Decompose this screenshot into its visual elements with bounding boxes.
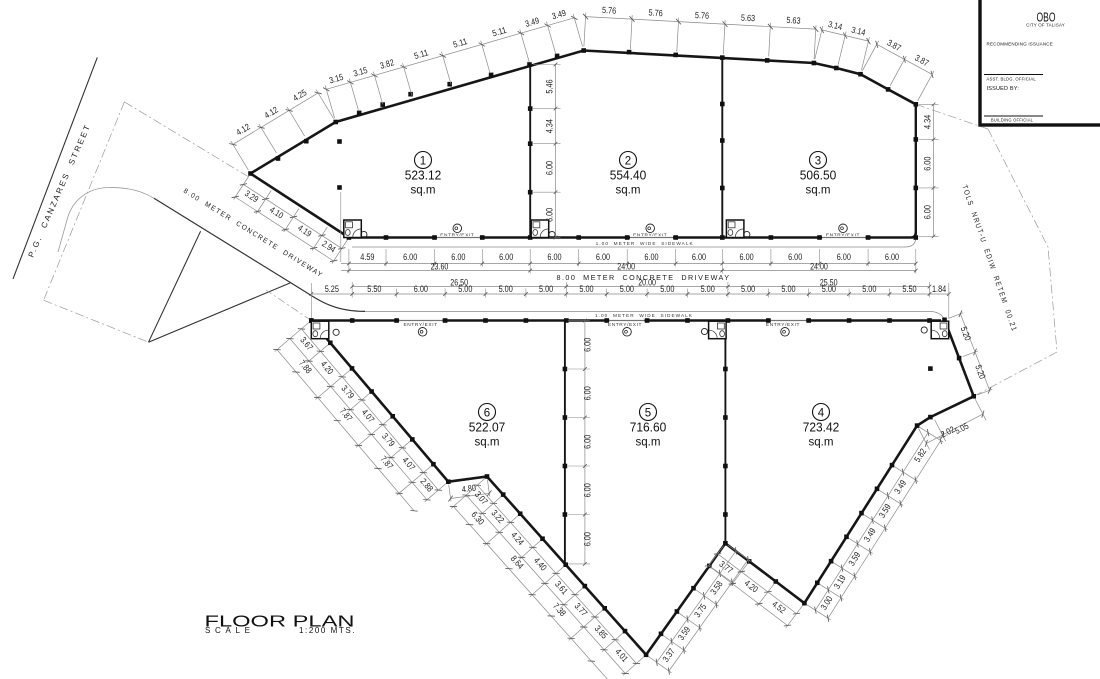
svg-text:ENTRY/EXIT: ENTRY/EXIT (608, 322, 642, 328)
svg-text:20.00: 20.00 (638, 277, 656, 287)
svg-text:5: 5 (645, 407, 651, 419)
svg-text:6.00: 6.00 (885, 252, 899, 262)
svg-text:6.00: 6.00 (740, 252, 754, 262)
svg-text:5.00: 5.00 (822, 284, 836, 294)
svg-text:716.60: 716.60 (630, 419, 667, 434)
svg-text:5.50: 5.50 (367, 284, 381, 294)
svg-text:6.00: 6.00 (923, 205, 933, 219)
svg-text:6.00: 6.00 (692, 252, 706, 262)
svg-text:4: 4 (818, 407, 825, 419)
svg-text:5.00: 5.00 (539, 284, 553, 294)
svg-text:sq.m: sq.m (809, 435, 834, 449)
svg-text:506.50: 506.50 (800, 167, 837, 182)
svg-text:ENTRY/EXIT: ENTRY/EXIT (404, 322, 438, 328)
svg-text:24.00: 24.00 (810, 261, 828, 271)
svg-text:5.63: 5.63 (786, 15, 801, 26)
svg-text:3: 3 (815, 155, 821, 167)
svg-text:4.59: 4.59 (360, 252, 374, 262)
svg-text:sq.m: sq.m (616, 183, 641, 197)
svg-text:6.00: 6.00 (582, 386, 592, 400)
svg-text:1.00 METER WIDE SIDEWALK: 1.00 METER WIDE SIDEWALK (595, 313, 693, 318)
svg-text:ISSUED BY:: ISSUED BY: (987, 86, 1020, 92)
svg-text:24.00: 24.00 (617, 261, 635, 271)
svg-text:6.00: 6.00 (582, 338, 592, 352)
svg-text:sq.m: sq.m (636, 435, 661, 449)
svg-text:5.00: 5.00 (701, 284, 715, 294)
svg-text:6.00: 6.00 (545, 161, 555, 175)
svg-text:6.00: 6.00 (596, 252, 610, 262)
svg-text:BUILDING OFFICIAL: BUILDING OFFICIAL (991, 118, 1034, 123)
svg-text:5.25: 5.25 (325, 284, 339, 294)
svg-text:5.63: 5.63 (741, 13, 756, 24)
svg-text:6.00: 6.00 (547, 252, 561, 262)
svg-text:sq.m: sq.m (411, 183, 436, 197)
svg-text:5.00: 5.00 (781, 284, 795, 294)
svg-text:723.42: 723.42 (803, 419, 840, 434)
svg-text:1.00 METER WIDE SIDEWALK: 1.00 METER WIDE SIDEWALK (596, 241, 694, 246)
svg-text:5.00: 5.00 (660, 284, 674, 294)
svg-text:5.00: 5.00 (741, 284, 755, 294)
svg-text:6.00: 6.00 (499, 252, 513, 262)
svg-text:522.07: 522.07 (469, 419, 506, 434)
svg-text:5.50: 5.50 (902, 284, 916, 294)
svg-text:5.00: 5.00 (579, 284, 593, 294)
svg-text:1: 1 (420, 155, 426, 167)
svg-text:4.34: 4.34 (545, 119, 555, 133)
svg-text:ASST. BLDG. OFFICIAL: ASST. BLDG. OFFICIAL (987, 77, 1037, 82)
svg-text:CITY OF TALISAY: CITY OF TALISAY (1026, 22, 1065, 27)
svg-text:5.00: 5.00 (862, 284, 876, 294)
svg-text:6.00: 6.00 (837, 252, 851, 262)
svg-text:1.84: 1.84 (932, 284, 946, 294)
svg-text:5.76: 5.76 (602, 5, 617, 16)
svg-text:6.00: 6.00 (788, 252, 802, 262)
svg-text:523.12: 523.12 (405, 167, 442, 182)
svg-text:RECOMMENDING ISSUANCE: RECOMMENDING ISSUANCE (987, 42, 1053, 47)
svg-text:ENTRY/EXIT: ENTRY/EXIT (766, 322, 800, 328)
svg-text:5.46: 5.46 (545, 79, 555, 93)
svg-text:5.00: 5.00 (499, 284, 513, 294)
svg-text:23.60: 23.60 (431, 261, 449, 271)
svg-text:2: 2 (625, 155, 631, 167)
svg-text:5.00: 5.00 (620, 284, 634, 294)
svg-text:sq.m: sq.m (806, 183, 831, 197)
svg-text:4.34: 4.34 (923, 115, 933, 129)
svg-text:6.00: 6.00 (414, 284, 428, 294)
svg-text:6: 6 (484, 407, 490, 419)
svg-text:5.00: 5.00 (458, 284, 472, 294)
svg-text:6.00: 6.00 (403, 252, 417, 262)
svg-text:6.00: 6.00 (451, 252, 465, 262)
svg-text:6.00: 6.00 (923, 157, 933, 171)
svg-text:6.00: 6.00 (582, 532, 592, 546)
svg-text:5.76: 5.76 (648, 7, 663, 18)
svg-text:6.00: 6.00 (644, 252, 658, 262)
svg-text:554.40: 554.40 (610, 167, 647, 182)
svg-text:6.00: 6.00 (582, 483, 592, 497)
svg-text:sq.m: sq.m (475, 435, 500, 449)
svg-text:5.76: 5.76 (695, 10, 710, 21)
svg-text:6.00: 6.00 (582, 435, 592, 449)
